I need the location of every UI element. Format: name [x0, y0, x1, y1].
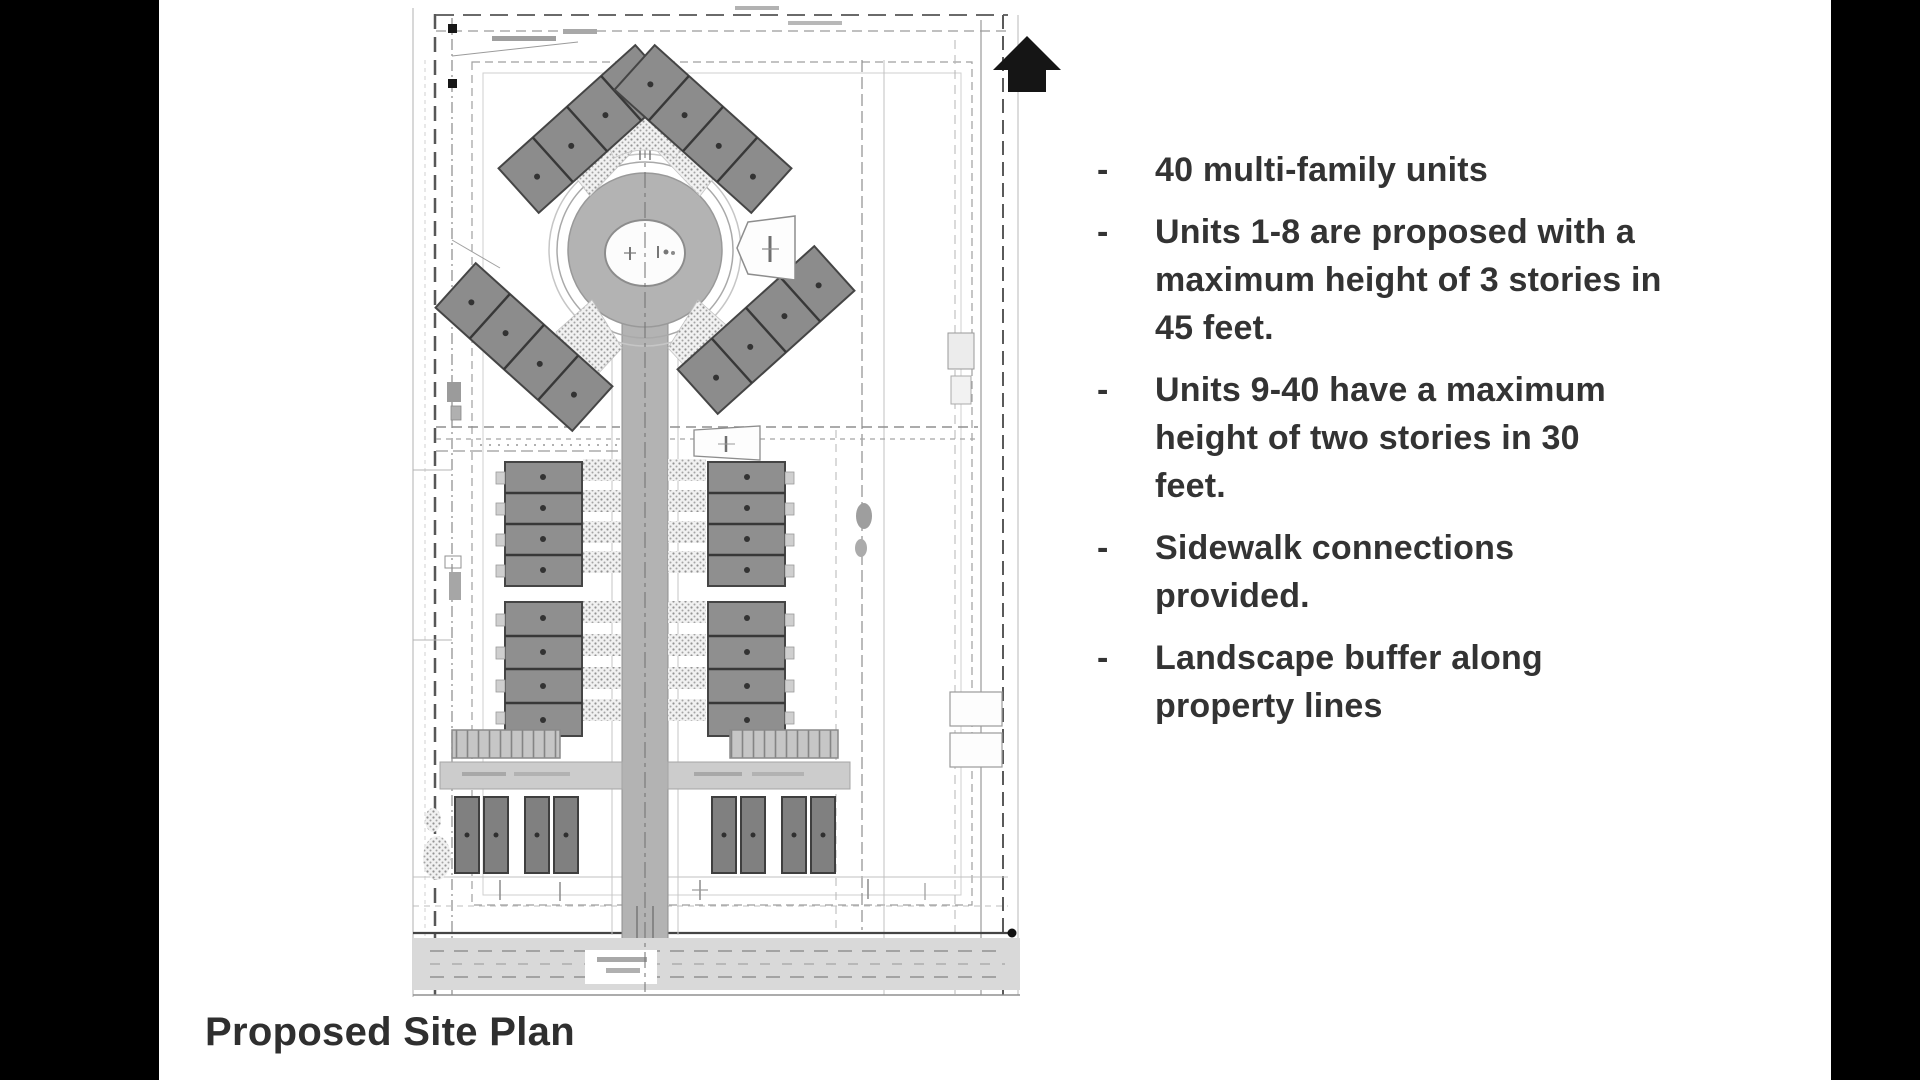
bullet-dash: - [1097, 208, 1155, 352]
bullet-dash: - [1097, 146, 1155, 194]
bullet-text: Units 1-8 are proposed with amaximum hei… [1155, 208, 1827, 352]
right-letterbox [1831, 0, 1920, 1080]
bullet-line: feet. [1155, 462, 1827, 510]
bullet-line: height of two stories in 30 [1155, 414, 1827, 462]
building-row-east-upper [708, 462, 785, 586]
bullet-item: -Sidewalk connectionsprovided. [1097, 524, 1827, 620]
left-letterbox [0, 0, 159, 1080]
bullet-item: -40 multi-family units [1097, 146, 1827, 194]
bullet-dash: - [1097, 634, 1155, 730]
slide-caption: Proposed Site Plan [205, 1008, 575, 1056]
bullet-list: -40 multi-family units-Units 1-8 are pro… [1097, 146, 1827, 744]
bullet-dash: - [1097, 524, 1155, 620]
site-plan-svg [395, 0, 1075, 1005]
bullet-line: Landscape buffer along [1155, 634, 1827, 682]
bullet-text: Sidewalk connectionsprovided. [1155, 524, 1827, 620]
bullet-text: Landscape buffer alongproperty lines [1155, 634, 1827, 730]
bullet-dash: - [1097, 366, 1155, 510]
building-row-west-upper [505, 462, 582, 586]
bullet-item: -Units 1-8 are proposed with amaximum he… [1097, 208, 1827, 352]
building-row-east-lower [708, 602, 785, 736]
bullet-line: maximum height of 3 stories in [1155, 256, 1827, 304]
bullet-line: 40 multi-family units [1155, 146, 1827, 194]
site-plan-drawing [395, 0, 1075, 1005]
bullet-line: provided. [1155, 572, 1827, 620]
bullet-item: -Landscape buffer alongproperty lines [1097, 634, 1827, 730]
amenity-pad [694, 426, 760, 460]
bullet-text: Units 9-40 have a maximumheight of two s… [1155, 366, 1827, 510]
building-row-west-lower [505, 602, 582, 736]
bullet-text: 40 multi-family units [1155, 146, 1827, 194]
bullet-line: Sidewalk connections [1155, 524, 1827, 572]
bullet-line: property lines [1155, 682, 1827, 730]
mail-kiosk [737, 216, 795, 280]
slide: -40 multi-family units-Units 1-8 are pro… [159, 0, 1831, 1080]
bullet-item: -Units 9-40 have a maximumheight of two … [1097, 366, 1827, 510]
bullet-line: Units 9-40 have a maximum [1155, 366, 1827, 414]
bullet-line: 45 feet. [1155, 304, 1827, 352]
bullet-line: Units 1-8 are proposed with a [1155, 208, 1827, 256]
